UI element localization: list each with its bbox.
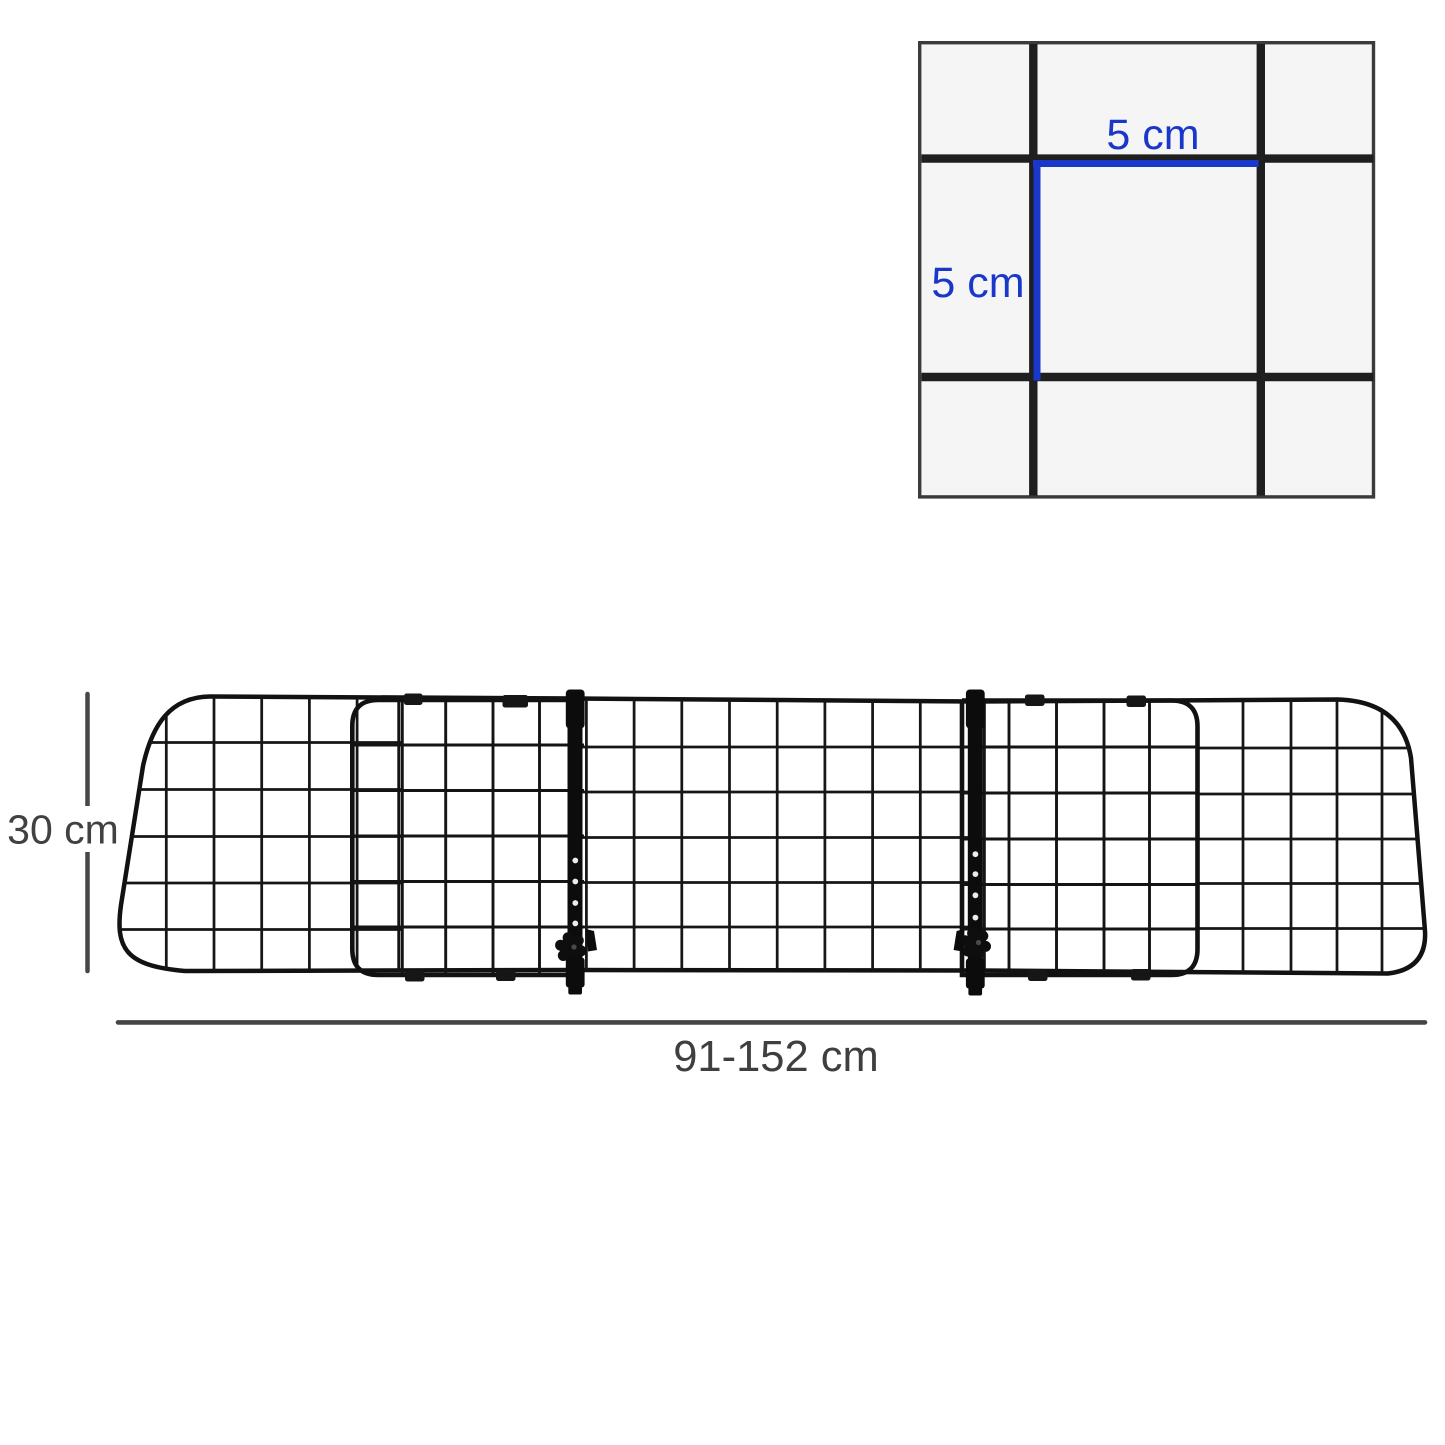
svg-text:91-152 cm: 91-152 cm bbox=[673, 1033, 879, 1081]
svg-text:5 cm: 5 cm bbox=[1106, 111, 1199, 159]
svg-text:30 cm: 30 cm bbox=[7, 807, 119, 853]
svg-text:5 cm: 5 cm bbox=[931, 259, 1024, 307]
